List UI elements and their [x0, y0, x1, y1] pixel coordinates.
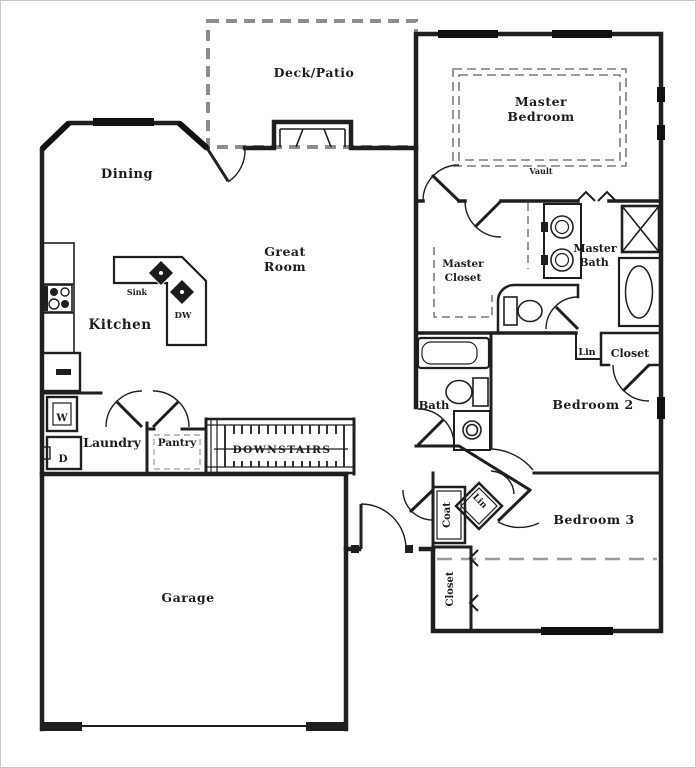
- master-bedroom-label-1: Master: [515, 94, 567, 109]
- bedroom3-label: Bedroom 3: [553, 512, 634, 527]
- bedroom2-closet-door: [613, 365, 649, 401]
- great-room-label-1: Great: [264, 244, 306, 259]
- master-bedroom-door: [423, 165, 459, 201]
- bedroom2-door: [490, 449, 533, 470]
- floor-plan-svg: Deck/Patio Master Bedroom Vault Dining G…: [1, 1, 696, 768]
- master-vanity-double-sinks: [541, 204, 581, 278]
- closet-master-label: Closet: [611, 347, 650, 360]
- master-bedroom-label-2: Bedroom: [507, 109, 574, 124]
- master-closet-door: [465, 201, 501, 237]
- master-bath-label-1: Master: [573, 242, 617, 255]
- water-closet-door: [546, 297, 578, 329]
- garage-door: [42, 722, 346, 731]
- bedroom2-label: Bedroom 2: [552, 397, 633, 412]
- pantry-door: [153, 391, 189, 427]
- laundry-door: [106, 391, 142, 427]
- hall-toilet: [446, 378, 488, 406]
- front-door: [351, 504, 413, 553]
- deck-outline: [208, 21, 416, 147]
- vault-label: Vault: [528, 166, 553, 176]
- dining-label: Dining: [101, 167, 153, 182]
- cooktop: [43, 285, 72, 312]
- kitchen-label: Kitchen: [88, 317, 151, 333]
- master-shower: [622, 206, 659, 252]
- hall-bath-vanity-sink: [454, 411, 490, 450]
- linen-master-label: Lin: [578, 347, 595, 358]
- sink-label: Sink: [127, 287, 148, 297]
- deck-patio-label: Deck/Patio: [274, 65, 355, 80]
- hall-bathtub: [418, 338, 489, 368]
- bath-label: Bath: [419, 398, 450, 412]
- master-bath-label-2: Bath: [579, 256, 609, 269]
- bay-window: [280, 129, 345, 147]
- coat-label: Coat: [442, 502, 453, 528]
- floor-plan: Deck/Patio Master Bedroom Vault Dining G…: [0, 0, 696, 768]
- deck-door: [207, 148, 245, 182]
- washer-label: W: [55, 413, 68, 424]
- closet-bedroom3-label: Closet: [445, 571, 456, 606]
- refrigerator: [43, 353, 80, 391]
- garage-label: Garage: [161, 590, 214, 605]
- linen-entry-door: [491, 471, 514, 494]
- coat-closet-door: [403, 490, 433, 520]
- master-closet-label-2: Closet: [445, 272, 482, 284]
- downstairs-label: DOWNSTAIRS: [233, 444, 332, 456]
- great-room-label-2: Room: [264, 259, 306, 274]
- laundry-label: Laundry: [83, 435, 141, 450]
- pantry-label: Pantry: [158, 437, 197, 449]
- water-closet-toilet: [504, 297, 542, 325]
- dryer-label: D: [58, 453, 67, 465]
- bedroom3-door: [498, 490, 539, 527]
- dishwasher-label: DW: [175, 311, 192, 321]
- exterior-walls: [42, 34, 661, 729]
- master-closet-label-1: Master: [442, 258, 484, 270]
- hall-bath-door: [418, 409, 454, 445]
- garden-tub: [619, 258, 660, 326]
